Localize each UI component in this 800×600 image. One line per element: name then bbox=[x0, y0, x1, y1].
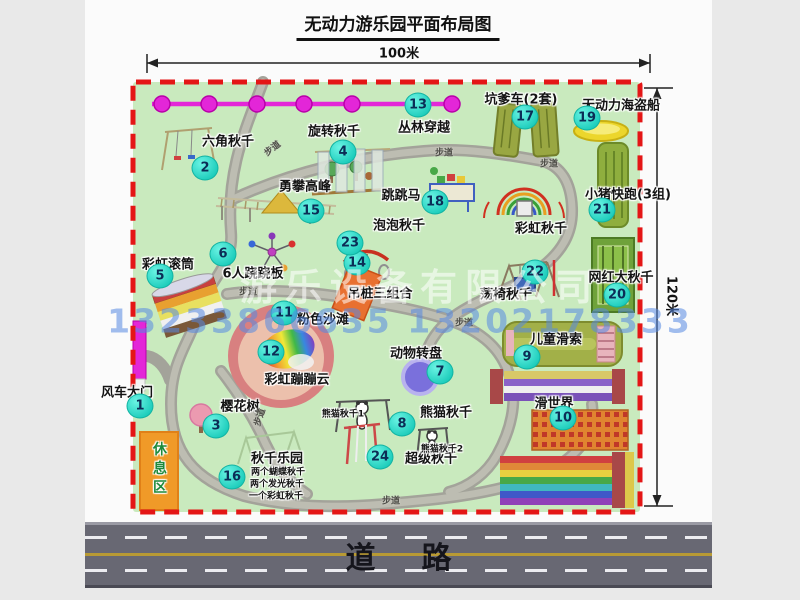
facility-15-circle: 15 bbox=[298, 199, 325, 224]
facility-12-label: 彩虹蹦蹦云 bbox=[264, 369, 329, 388]
facility-11-label: 粉色沙滩 bbox=[297, 309, 349, 328]
facility-4-circle: 4 bbox=[330, 140, 357, 165]
walkway-label: 步道 bbox=[455, 316, 473, 329]
rest-area-label: 休息区 bbox=[149, 442, 169, 499]
page-title: 无动力游乐园平面布局图 bbox=[297, 10, 500, 41]
facility-1-circle: 1 bbox=[127, 394, 154, 419]
facility-2-circle: 2 bbox=[192, 156, 219, 181]
panda-swing-1-label: 熊猫秋千1 bbox=[322, 407, 364, 420]
screenshot-stage: 无动力游乐园平面布局图 100米 120米 bbox=[0, 0, 800, 600]
walkway-label: 步道 bbox=[540, 157, 558, 170]
facility-7-circle: 7 bbox=[427, 360, 454, 385]
facility-12-circle: 12 bbox=[258, 340, 285, 365]
facility-3-circle: 3 bbox=[203, 414, 230, 439]
facility-21-circle: 21 bbox=[589, 198, 616, 223]
road-label: 道路 bbox=[346, 533, 498, 577]
facility-7-label: 动物转盘 bbox=[390, 343, 442, 362]
swing-item-3-label: 一个彩虹秋千 bbox=[249, 489, 303, 502]
facility-19-circle: 19 bbox=[574, 106, 601, 131]
facility-9-label: 儿童滑索 bbox=[530, 329, 582, 348]
facility-17-circle: 17 bbox=[512, 105, 539, 130]
facility-8-circle: 8 bbox=[389, 412, 416, 437]
facility-14-label: 吊桩三组合 bbox=[347, 283, 412, 302]
road: 道路 bbox=[85, 522, 712, 588]
facility-5-circle: 5 bbox=[147, 264, 174, 289]
facility-15-label: 勇攀高峰 bbox=[279, 176, 331, 195]
facility-23-label: 泡泡秋千 bbox=[373, 215, 425, 234]
facility-6-circle: 6 bbox=[210, 242, 237, 267]
facility-22-circle: 22 bbox=[522, 260, 549, 285]
facility-23-circle: 23 bbox=[337, 231, 364, 256]
facility-18-circle: 18 bbox=[422, 190, 449, 215]
facility-20-circle: 20 bbox=[604, 283, 631, 308]
facility-11-circle: 11 bbox=[271, 301, 298, 326]
facility-18-label: 跳跳马 bbox=[381, 185, 420, 204]
panda-swing-2-label: 熊猫秋千2 bbox=[421, 442, 463, 455]
facility-9-circle: 9 bbox=[514, 345, 541, 370]
facility-24-circle: 24 bbox=[367, 445, 394, 470]
facility-10-circle: 10 bbox=[550, 406, 577, 431]
facility-8-label: 熊猫秋千 bbox=[420, 402, 472, 421]
rainbow-swing-label: 彩虹秋千 bbox=[515, 218, 567, 237]
facility-13-label: 丛林穿越 bbox=[398, 117, 450, 136]
facility-4-label: 旋转秋千 bbox=[308, 121, 360, 140]
height-dimension-label: 120米 bbox=[664, 276, 683, 316]
width-dimension-label: 100米 bbox=[379, 43, 419, 62]
facility-16-circle: 16 bbox=[219, 465, 246, 490]
walkway-label: 步道 bbox=[239, 285, 257, 298]
walkway-label: 步道 bbox=[435, 146, 453, 159]
facility-2-label: 六角秋千 bbox=[202, 131, 254, 150]
walkway-label: 步道 bbox=[382, 494, 400, 507]
facility-22-label: 荡椅秋千 bbox=[480, 284, 532, 303]
facility-6-label: 6人跷跷板 bbox=[222, 263, 283, 282]
facility-13-circle: 13 bbox=[405, 93, 432, 118]
